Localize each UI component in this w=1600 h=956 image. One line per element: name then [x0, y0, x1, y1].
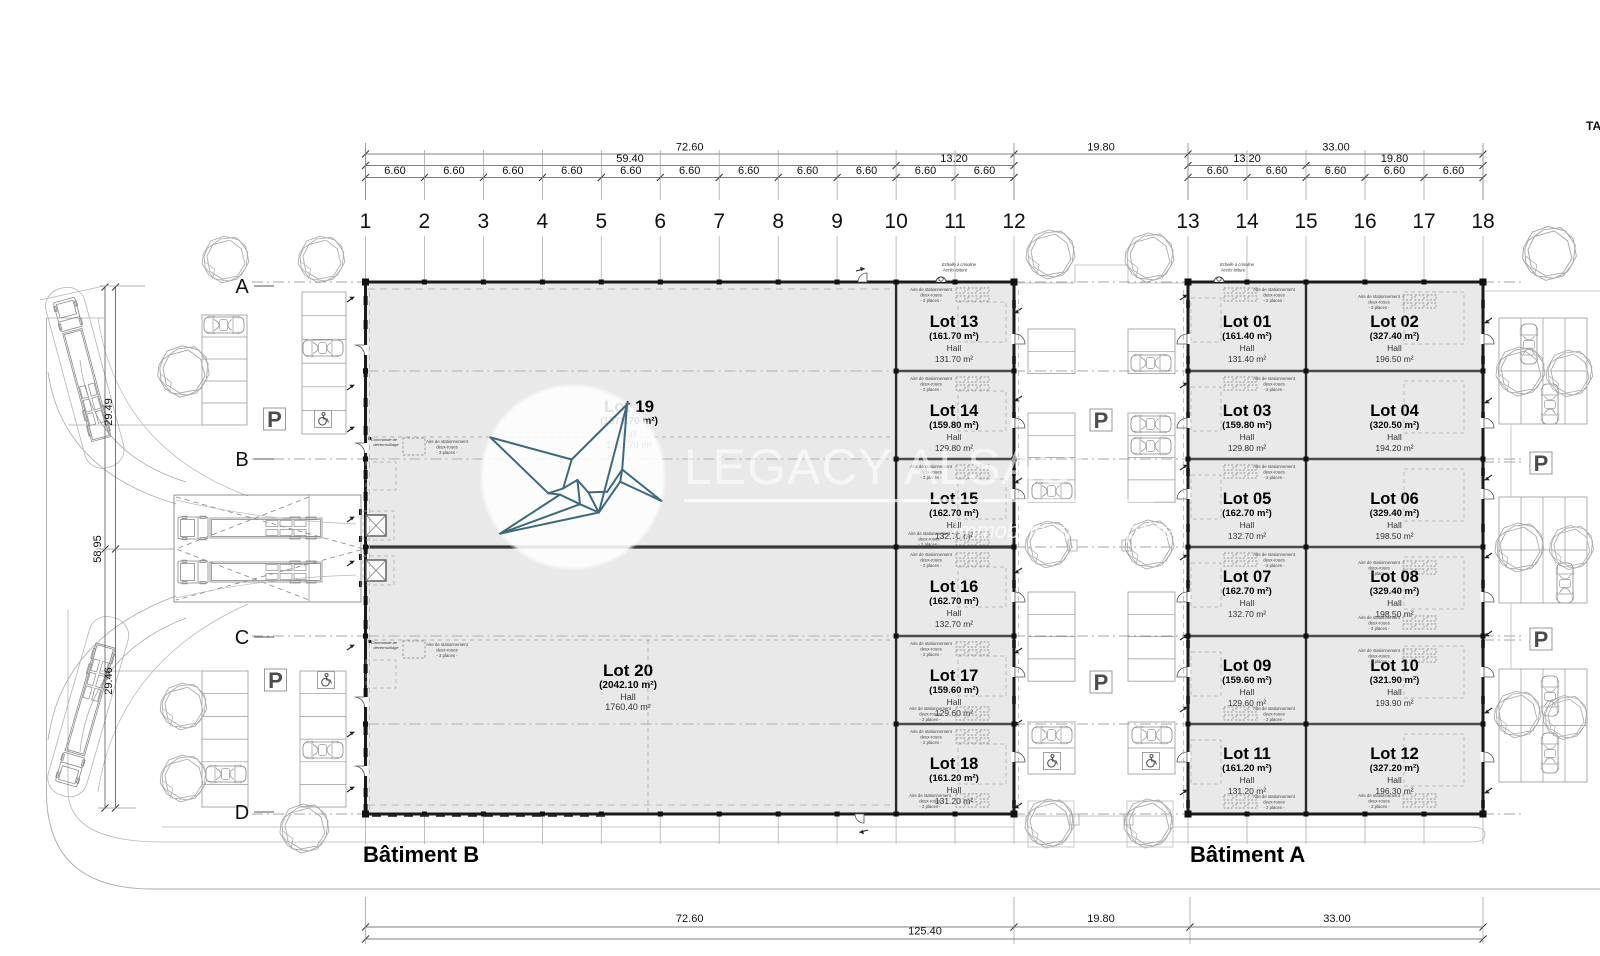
svg-text:deux-roues: deux-roues: [920, 558, 942, 563]
svg-text:deux-roues: deux-roues: [1368, 300, 1390, 305]
svg-text:(161.40 m²): (161.40 m²): [1222, 331, 1272, 342]
svg-text:C: C: [235, 627, 249, 649]
svg-text:deux-roues: deux-roues: [1263, 800, 1285, 805]
svg-text:- 3 places -: - 3 places -: [1368, 571, 1390, 576]
svg-text:Aire de stationnement: Aire de stationnement: [426, 642, 469, 647]
svg-text:Lot 13: Lot 13: [930, 313, 979, 331]
svg-text:Hall: Hall: [1387, 432, 1402, 442]
svg-text:B: B: [235, 449, 248, 471]
svg-text:(159.60 m²): (159.60 m²): [929, 685, 979, 696]
svg-text:(329.40 m²): (329.40 m²): [1370, 508, 1420, 519]
svg-text:Lot 12: Lot 12: [1370, 745, 1419, 763]
svg-text:- 2 places -: - 2 places -: [1263, 475, 1285, 480]
svg-text:Aire de stationnement: Aire de stationnement: [908, 531, 951, 536]
svg-text:(162.70 m²): (162.70 m²): [1222, 508, 1272, 519]
svg-text:- 2 places -: - 2 places -: [1263, 387, 1285, 392]
svg-text:Hall: Hall: [1387, 520, 1402, 530]
svg-text:129.80 m²: 129.80 m²: [1228, 443, 1266, 453]
svg-text:deux-roues: deux-roues: [1263, 558, 1285, 563]
svg-text:1: 1: [360, 210, 372, 233]
svg-text:6.60: 6.60: [1325, 165, 1346, 177]
svg-text:Lot 20: Lot 20: [603, 661, 653, 680]
svg-text:D: D: [235, 802, 249, 824]
svg-text:Immobilier d'entreprise: Immobilier d'entreprise: [952, 518, 1174, 543]
svg-text:Hall: Hall: [1240, 343, 1255, 353]
svg-text:6.60: 6.60: [561, 165, 582, 177]
svg-text:deux-roues: deux-roues: [1368, 621, 1390, 626]
svg-text:Lot 11: Lot 11: [1223, 745, 1271, 763]
svg-text:- 2 places -: - 2 places -: [920, 652, 942, 657]
svg-text:deux-roues: deux-roues: [918, 537, 940, 542]
svg-text:29.49: 29.49: [103, 398, 115, 426]
svg-text:deux-roues: deux-roues: [1368, 654, 1390, 659]
svg-text:Aire de stationnement: Aire de stationnement: [910, 729, 953, 734]
svg-text:Lot 02: Lot 02: [1370, 313, 1419, 331]
svg-text:13: 13: [1176, 210, 1199, 233]
svg-text:deux-roues: deux-roues: [1263, 293, 1285, 298]
svg-text:déverrouillage: déverrouillage: [373, 442, 399, 447]
svg-text:6.60: 6.60: [856, 165, 877, 177]
svg-text:deux-roues: deux-roues: [920, 382, 942, 387]
svg-text:Lot 18: Lot 18: [930, 755, 979, 773]
svg-text:Aire de stationnement: Aire de stationnement: [909, 706, 952, 711]
svg-text:(161.70 m²): (161.70 m²): [929, 331, 979, 342]
svg-text:- 2 places -: - 2 places -: [919, 804, 941, 809]
svg-text:- 3 places -: - 3 places -: [1368, 626, 1390, 631]
svg-text:(327.20 m²): (327.20 m²): [1370, 763, 1420, 774]
svg-text:deux-roues: deux-roues: [1263, 382, 1285, 387]
svg-text:Aire de stationnement: Aire de stationnement: [910, 641, 953, 646]
svg-text:11: 11: [944, 210, 966, 233]
svg-text:- 2 places -: - 2 places -: [920, 740, 942, 745]
svg-text:- 2 places -: - 2 places -: [920, 387, 942, 392]
svg-text:deux-roues: deux-roues: [920, 735, 942, 740]
svg-text:Bâtiment A: Bâtiment A: [1190, 842, 1305, 867]
svg-text:- 3 places -: - 3 places -: [1368, 659, 1390, 664]
svg-text:6.60: 6.60: [974, 165, 995, 177]
svg-text:10: 10: [884, 210, 907, 233]
svg-text:deux-roues: deux-roues: [1368, 799, 1390, 804]
svg-text:6.60: 6.60: [384, 165, 405, 177]
svg-text:(159.80 m²): (159.80 m²): [1222, 420, 1272, 431]
svg-text:6.60: 6.60: [738, 165, 759, 177]
svg-text:9: 9: [831, 210, 843, 233]
svg-text:(159.80 m²): (159.80 m²): [929, 420, 979, 431]
svg-text:Aire de stationnement: Aire de stationnement: [1253, 706, 1296, 711]
svg-text:59.40: 59.40: [616, 153, 644, 165]
svg-text:14: 14: [1235, 210, 1259, 233]
svg-text:deux-roues: deux-roues: [919, 799, 941, 804]
svg-text:132.70 m²: 132.70 m²: [935, 619, 973, 629]
svg-text:12: 12: [1002, 210, 1025, 233]
svg-text:(321.90 m²): (321.90 m²): [1370, 675, 1420, 686]
svg-text:6.60: 6.60: [1266, 165, 1287, 177]
svg-text:6.60: 6.60: [502, 165, 523, 177]
svg-text:Lot 14: Lot 14: [930, 402, 979, 420]
svg-text:Lot 17: Lot 17: [930, 667, 979, 685]
svg-text:Accès toiture: Accès toiture: [942, 268, 968, 273]
svg-text:- 3 places -: - 3 places -: [1368, 804, 1390, 809]
svg-text:6.60: 6.60: [1443, 165, 1464, 177]
svg-text:(161.20 m²): (161.20 m²): [1222, 763, 1272, 774]
svg-text:Hall: Hall: [1240, 432, 1255, 442]
svg-text:6.60: 6.60: [915, 165, 936, 177]
svg-text:125.40: 125.40: [908, 926, 942, 938]
svg-text:7: 7: [713, 210, 725, 233]
svg-text:deux-roues: deux-roues: [919, 712, 941, 717]
svg-text:6.60: 6.60: [1384, 165, 1405, 177]
svg-text:Aire de stationnement: Aire de stationnement: [910, 287, 953, 292]
svg-text:deux-roues: deux-roues: [436, 648, 458, 653]
svg-text:deux-roues: deux-roues: [1263, 712, 1285, 717]
svg-text:(320.50 m²): (320.50 m²): [1370, 420, 1420, 431]
svg-text:Hall: Hall: [1240, 775, 1255, 785]
svg-text:Hall: Hall: [1240, 687, 1255, 697]
svg-text:Aire de stationnement: Aire de stationnement: [426, 439, 469, 444]
svg-text:Lot 07: Lot 07: [1223, 568, 1272, 586]
svg-text:- 2 places -: - 2 places -: [1263, 298, 1285, 303]
svg-text:72.60: 72.60: [676, 142, 704, 154]
svg-text:Lot 16: Lot 16: [930, 578, 979, 596]
svg-text:29.46: 29.46: [103, 667, 115, 695]
svg-text:Lot 05: Lot 05: [1223, 490, 1272, 508]
svg-text:TABLEAU: TABLEAU: [1586, 119, 1600, 133]
svg-text:Hall: Hall: [1387, 775, 1402, 785]
svg-text:Aire de stationnement: Aire de stationnement: [910, 552, 953, 557]
svg-text:6.60: 6.60: [1207, 165, 1228, 177]
svg-text:Aire de stationnement: Aire de stationnement: [1253, 376, 1296, 381]
svg-text:Lot 03: Lot 03: [1223, 402, 1272, 420]
svg-text:déverrouillage: déverrouillage: [373, 645, 399, 650]
svg-text:Lot 09: Lot 09: [1223, 657, 1272, 675]
svg-text:4: 4: [537, 210, 549, 233]
svg-text:Hall: Hall: [620, 692, 636, 702]
svg-text:19.80: 19.80: [1087, 913, 1115, 925]
svg-text:19.80: 19.80: [1087, 142, 1115, 154]
svg-text:16: 16: [1353, 210, 1376, 233]
svg-text:- 2 places -: - 2 places -: [1263, 717, 1285, 722]
svg-text:Hall: Hall: [1387, 687, 1402, 697]
svg-text:15: 15: [1294, 210, 1317, 233]
svg-text:(162.70 m²): (162.70 m²): [1222, 586, 1272, 597]
svg-text:Aire de stationnement: Aire de stationnement: [1253, 794, 1296, 799]
svg-text:Hall: Hall: [947, 343, 962, 353]
svg-text:(161.20 m²): (161.20 m²): [929, 773, 979, 784]
svg-text:Aire de stationnement: Aire de stationnement: [1253, 464, 1296, 469]
svg-text:Echelle à crinoline: Echelle à crinoline: [942, 262, 977, 267]
svg-text:- 3 places -: - 3 places -: [436, 450, 458, 455]
svg-text:198.50 m²: 198.50 m²: [1375, 531, 1413, 541]
svg-text:2: 2: [419, 210, 431, 233]
svg-text:Accès toiture: Accès toiture: [1220, 268, 1246, 273]
svg-text:6: 6: [654, 210, 666, 233]
svg-text:A: A: [235, 276, 249, 298]
svg-text:(159.60 m²): (159.60 m²): [1222, 675, 1272, 686]
svg-text:- 2 places -: - 2 places -: [1263, 563, 1285, 568]
svg-text:(327.40 m²): (327.40 m²): [1370, 331, 1420, 342]
svg-text:18: 18: [1471, 210, 1494, 233]
svg-text:deux-roues: deux-roues: [920, 647, 942, 652]
svg-text:8: 8: [772, 210, 784, 233]
svg-text:194.20 m²: 194.20 m²: [1375, 443, 1413, 453]
svg-text:Hall: Hall: [947, 608, 962, 618]
svg-text:deux-roues: deux-roues: [1263, 470, 1285, 475]
svg-text:196.50 m²: 196.50 m²: [1375, 354, 1413, 364]
svg-text:Hall: Hall: [1387, 598, 1402, 608]
svg-text:131.70 m²: 131.70 m²: [935, 354, 973, 364]
svg-text:193.90 m²: 193.90 m²: [1375, 698, 1413, 708]
svg-text:- 2 places -: - 2 places -: [919, 717, 941, 722]
svg-text:Lot 06: Lot 06: [1370, 490, 1419, 508]
svg-text:132.70 m²: 132.70 m²: [1228, 531, 1266, 541]
svg-text:Hall: Hall: [1240, 598, 1255, 608]
svg-text:deux-roues: deux-roues: [436, 445, 458, 450]
svg-text:Aire de stationnement: Aire de stationnement: [1253, 287, 1296, 292]
svg-text:17: 17: [1412, 210, 1435, 233]
svg-text:Aire de stationnement: Aire de stationnement: [1358, 560, 1401, 565]
svg-text:6.60: 6.60: [443, 165, 464, 177]
svg-text:LEGACY ALSACE: LEGACY ALSACE: [684, 439, 1107, 495]
svg-text:Aire de stationnement: Aire de stationnement: [1358, 793, 1401, 798]
svg-text:Aire de stationnement: Aire de stationnement: [1358, 615, 1401, 620]
svg-text:Hall: Hall: [1240, 520, 1255, 530]
svg-text:131.40 m²: 131.40 m²: [1228, 354, 1266, 364]
svg-text:Lot 04: Lot 04: [1370, 402, 1419, 420]
svg-text:- 2 places -: - 2 places -: [920, 563, 942, 568]
svg-text:deux-roues: deux-roues: [920, 293, 942, 298]
svg-text:1760.40 m²: 1760.40 m²: [605, 702, 651, 712]
svg-text:13.20: 13.20: [940, 153, 968, 165]
svg-text:33.00: 33.00: [1323, 913, 1351, 925]
svg-text:Echelle à crinoline: Echelle à crinoline: [1220, 262, 1255, 267]
svg-text:Aire de stationnement: Aire de stationnement: [1358, 648, 1401, 653]
svg-text:Aire de stationnement: Aire de stationnement: [909, 793, 952, 798]
svg-text:6.60: 6.60: [679, 165, 700, 177]
svg-text:Aire de stationnement: Aire de stationnement: [1358, 294, 1401, 299]
svg-text:Aire de stationnement: Aire de stationnement: [1253, 552, 1296, 557]
svg-text:Hall: Hall: [1387, 343, 1402, 353]
svg-text:- 2 places -: - 2 places -: [1263, 805, 1285, 810]
svg-text:- 3 places -: - 3 places -: [1368, 305, 1390, 310]
svg-text:deux-roues: deux-roues: [1368, 566, 1390, 571]
svg-text:19.80: 19.80: [1381, 153, 1409, 165]
svg-text:Aire de stationnement: Aire de stationnement: [910, 376, 953, 381]
svg-text:Bâtiment B: Bâtiment B: [363, 842, 479, 867]
svg-text:Lot 01: Lot 01: [1223, 313, 1272, 331]
svg-text:33.00: 33.00: [1322, 142, 1350, 154]
svg-text:(329.40 m²): (329.40 m²): [1370, 586, 1420, 597]
svg-text:72.60: 72.60: [676, 913, 704, 925]
svg-text:- 3 places -: - 3 places -: [436, 653, 458, 658]
svg-text:3: 3: [478, 210, 490, 233]
svg-text:(162.70 m²): (162.70 m²): [929, 596, 979, 607]
svg-text:6.60: 6.60: [620, 165, 641, 177]
svg-text:132.70 m²: 132.70 m²: [1228, 609, 1266, 619]
svg-text:- 2 places -: - 2 places -: [920, 298, 942, 303]
svg-text:5: 5: [595, 210, 607, 233]
svg-text:6.60: 6.60: [797, 165, 818, 177]
svg-text:- 2 places -: - 2 places -: [918, 542, 940, 547]
